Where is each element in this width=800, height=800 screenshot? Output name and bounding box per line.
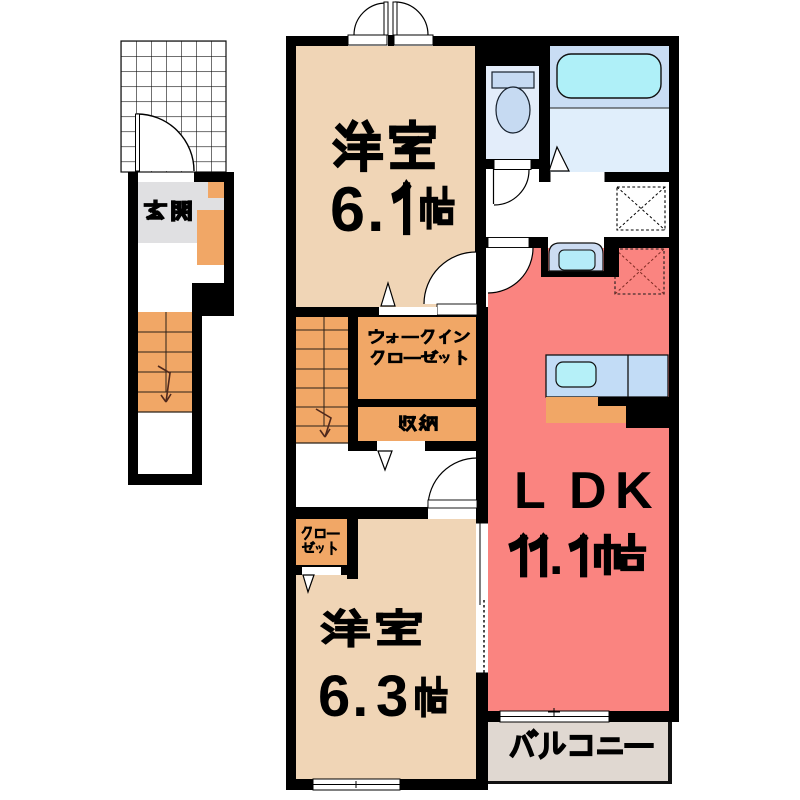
svg-text:L: L bbox=[514, 462, 546, 520]
svg-text:6.: 6. bbox=[318, 664, 370, 729]
svg-text:D: D bbox=[569, 462, 607, 520]
svg-text:3: 3 bbox=[376, 664, 408, 729]
svg-text:.: . bbox=[549, 528, 563, 586]
svg-text:6.: 6. bbox=[330, 175, 387, 245]
svg-text:K: K bbox=[615, 462, 653, 520]
